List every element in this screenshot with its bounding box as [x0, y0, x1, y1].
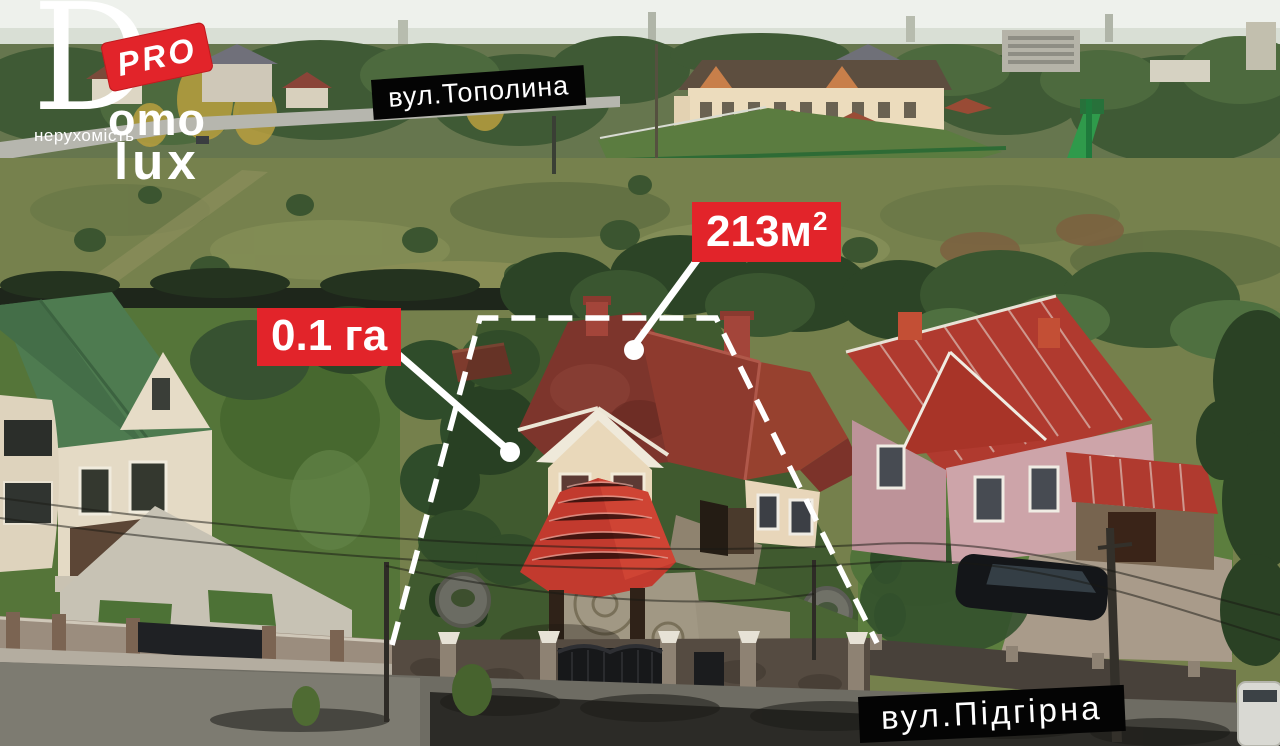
logo-tagline: нерухомість: [34, 126, 134, 146]
agency-logo: D omo lux нерухомість PRO: [18, 6, 238, 186]
house-area-label: 213м2: [692, 202, 841, 262]
house-area-value: 213м: [706, 207, 812, 256]
sign-post: [552, 116, 556, 174]
house-area-sup: 2: [813, 206, 827, 236]
land-area-label: 0.1 га: [257, 308, 401, 366]
real-estate-aerial-ad: D omo lux нерухомість PRO вул.Тополина 2…: [0, 0, 1280, 746]
white-van: [1238, 682, 1280, 746]
